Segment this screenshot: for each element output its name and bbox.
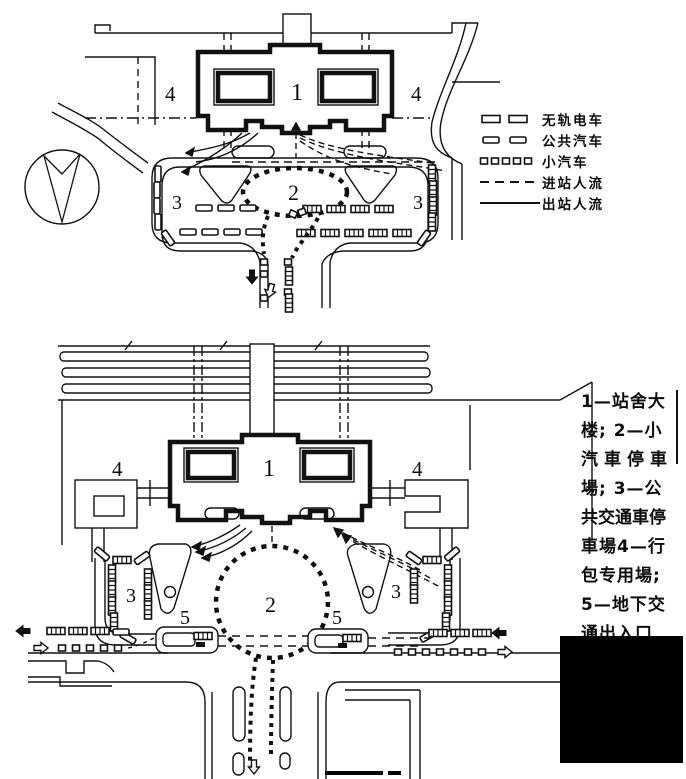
legend-row-car: 小汽车 <box>478 150 684 171</box>
south-avenue <box>28 653 560 779</box>
solid-line-icon <box>478 196 542 210</box>
caption-line: 包专用場; <box>581 562 685 591</box>
baggage-annex-left <box>75 480 170 562</box>
car-icon <box>478 154 542 168</box>
label-baggage-right: 4 <box>411 82 422 106</box>
bus-icon <box>478 133 542 147</box>
label-transit-right: 3 <box>391 581 401 603</box>
label-transit-right: 3 <box>413 192 423 214</box>
label-plaza: 2 <box>288 180 299 205</box>
legend-row-inbound-flow: 进站人流 <box>478 171 684 192</box>
legend-label: 出站人流 <box>542 193 604 213</box>
caption-line: 楼; 2—小 <box>581 417 685 446</box>
legend-label: 进站人流 <box>542 172 604 192</box>
underground-entrance-right <box>308 629 368 653</box>
trolleybus-icon <box>478 112 542 126</box>
legend-label: 无轨电车 <box>542 109 604 129</box>
blacked-out-block <box>560 636 683 763</box>
caption-side-rule <box>676 390 678 464</box>
legend-row-bus: 公共汽车 <box>478 129 684 150</box>
underground-entrance-left <box>156 627 218 653</box>
label-baggage-left: 4 <box>165 82 176 106</box>
dashed-line-icon <box>478 175 542 189</box>
label-building: 1 <box>291 80 303 106</box>
caption-line: 車場4—行 <box>581 533 685 562</box>
caption-line: 汽車停車 <box>581 446 685 475</box>
label-baggage-left: 4 <box>112 457 123 481</box>
apron-flows <box>192 508 438 586</box>
overpass-corridor <box>250 344 274 442</box>
legend-label: 公共汽车 <box>542 130 604 150</box>
legend: 无轨电车 公共汽车 小汽车 进站人流 出站人流 <box>478 108 684 213</box>
north-compass-icon <box>25 150 99 224</box>
station-forecourt-plan-bottom: 1 4 4 2 <box>0 330 600 779</box>
legend-label: 小汽车 <box>542 151 589 171</box>
label-plaza: 2 <box>265 592 276 617</box>
station-forecourt-plan-top: 1 4 4 2 3 3 <box>0 0 520 330</box>
label-baggage-right: 4 <box>412 457 423 481</box>
caption-line: 場; 3—公 <box>581 475 685 504</box>
scale-bar <box>325 771 401 775</box>
caption-line: 5—地下交 <box>581 591 685 620</box>
caption-line: 1—站舍大 <box>581 388 685 417</box>
figure-caption: 1—站舍大 楼; 2—小 汽車停車 場; 3—公 共交通車停 車場4—行 包专用… <box>581 388 685 649</box>
label-transit-left: 3 <box>172 192 182 214</box>
label-building: 1 <box>263 456 275 482</box>
label-underground-left: 5 <box>180 607 190 629</box>
caption-line: 共交通車停 <box>581 504 685 533</box>
label-transit-left: 3 <box>126 585 136 607</box>
label-underground-right: 5 <box>332 607 342 629</box>
legend-row-outbound-flow: 出站人流 <box>478 192 684 213</box>
legend-row-trolleybus: 无轨电车 <box>478 108 684 129</box>
